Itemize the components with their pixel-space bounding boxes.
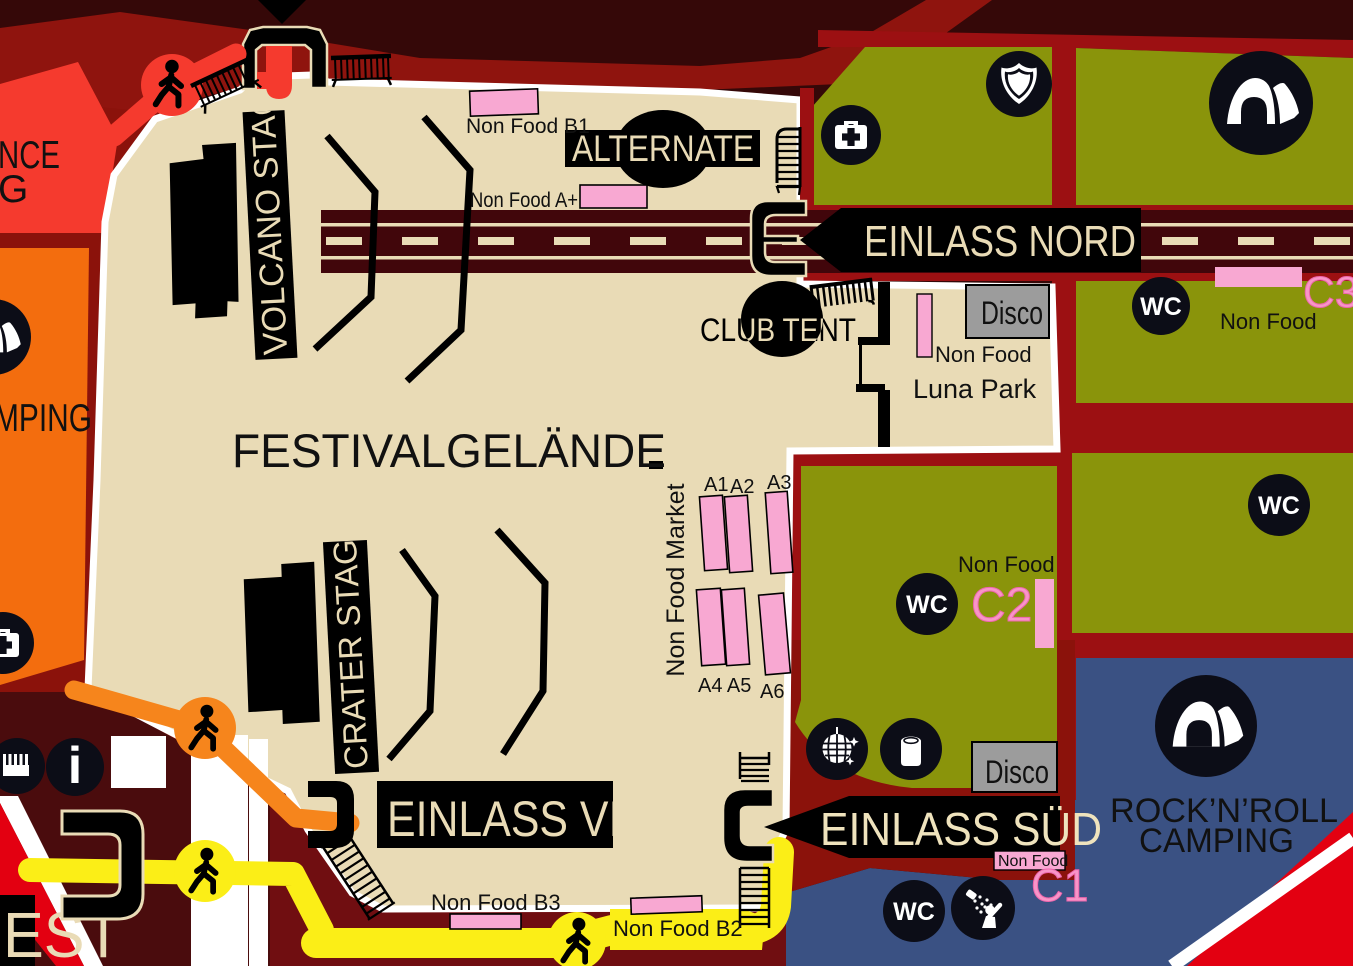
svg-text:ALTERNATE: ALTERNATE bbox=[572, 128, 754, 169]
svg-text:A6: A6 bbox=[760, 681, 784, 703]
svg-text:Non Food: Non Food bbox=[1220, 309, 1317, 334]
svg-text:A1: A1 bbox=[704, 474, 728, 496]
svg-text:FESTIVALGELÄNDE: FESTIVALGELÄNDE bbox=[232, 424, 666, 477]
svg-text:Non Food B1: Non Food B1 bbox=[466, 115, 590, 138]
svg-text:C1: C1 bbox=[1031, 860, 1089, 911]
svg-text:WC: WC bbox=[1140, 293, 1182, 321]
svg-text:Disco: Disco bbox=[985, 754, 1049, 790]
svg-text:Non Food: Non Food bbox=[958, 552, 1055, 577]
svg-text:WC: WC bbox=[906, 591, 948, 619]
svg-text:i: i bbox=[68, 737, 82, 795]
svg-text:WC: WC bbox=[1258, 492, 1300, 520]
svg-text:MPING: MPING bbox=[0, 397, 92, 440]
svg-text:A4 A5: A4 A5 bbox=[698, 675, 751, 697]
svg-text:EINLASS VIP: EINLASS VIP bbox=[387, 791, 649, 847]
svg-text:C2: C2 bbox=[971, 579, 1032, 632]
svg-text:Non Food B3: Non Food B3 bbox=[431, 890, 561, 915]
svg-text:A3: A3 bbox=[767, 472, 791, 494]
svg-text:A2: A2 bbox=[730, 476, 754, 498]
svg-text:Non Food Market: Non Food Market bbox=[662, 483, 690, 676]
svg-text:CAMPING: CAMPING bbox=[1139, 822, 1294, 860]
svg-text:CLUB TENT: CLUB TENT bbox=[700, 312, 856, 348]
svg-text:G: G bbox=[0, 168, 28, 211]
svg-text:EINLASS SÜD: EINLASS SÜD bbox=[820, 803, 1102, 855]
svg-text:Luna Park: Luna Park bbox=[913, 374, 1037, 404]
svg-text:Non Food A+: Non Food A+ bbox=[470, 189, 578, 212]
svg-text:WC: WC bbox=[893, 898, 935, 926]
svg-text:Disco: Disco bbox=[981, 295, 1043, 331]
svg-text:EINLASS NORD: EINLASS NORD bbox=[864, 217, 1136, 266]
svg-text:Non Food B2: Non Food B2 bbox=[613, 916, 743, 941]
svg-text:Non Food: Non Food bbox=[935, 342, 1032, 367]
